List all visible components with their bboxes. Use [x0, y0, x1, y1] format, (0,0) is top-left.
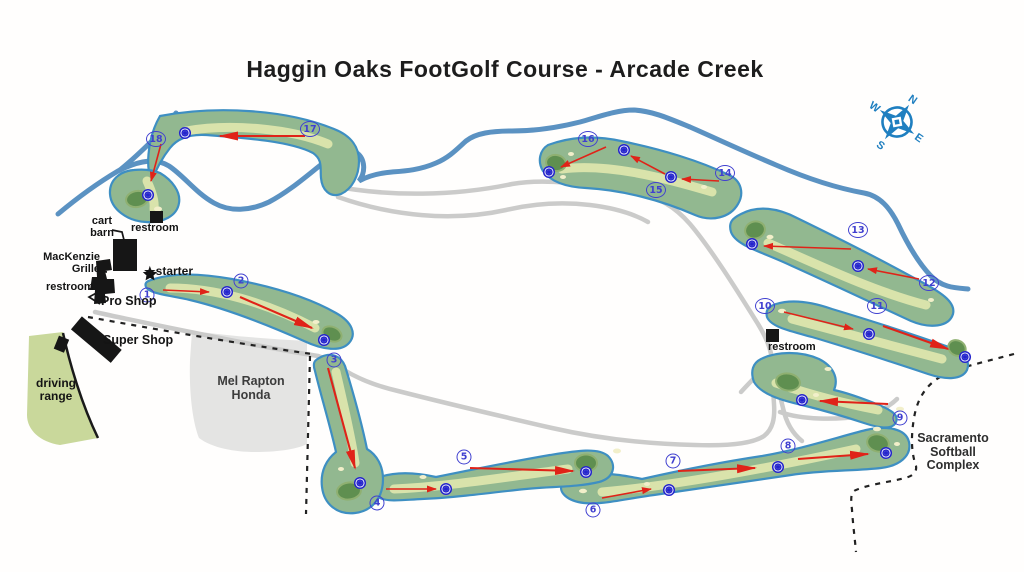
compass-n: N	[906, 93, 919, 107]
hole-12-target	[853, 261, 864, 272]
label-pro-shop: Pro Shop	[101, 295, 157, 309]
hole-8-label: 8	[781, 439, 796, 454]
hole-16-target	[544, 167, 555, 178]
label-mel-rapton-honda: Mel Rapton Honda	[204, 375, 298, 402]
label-softball-complex: Sacramento Softball Complex	[906, 432, 1000, 473]
hole-16-label: 16	[578, 131, 598, 147]
hole-7-label: 7	[666, 454, 681, 469]
hole-2-label: 2	[234, 274, 249, 289]
label-super-shop: Super Shop	[103, 334, 173, 348]
label-restroom-right: restroom	[768, 342, 816, 354]
hole-3-target	[355, 478, 366, 489]
hole-17-target	[180, 128, 191, 139]
compass-w: W	[867, 99, 883, 115]
fairways	[110, 110, 969, 513]
hole-8-target	[881, 448, 892, 459]
label-cart-barn: cart barn	[86, 216, 118, 240]
hole-13-label: 13	[848, 222, 868, 238]
hole-6-label: 6	[586, 503, 601, 518]
map-graphics: N E S W	[0, 0, 1024, 572]
hole-6-target	[664, 485, 675, 496]
compass-s: S	[874, 139, 887, 153]
course-map: N E S W 123456789101112131415161718 Hagg…	[0, 0, 1024, 572]
hole-18-target	[143, 190, 154, 201]
hole-7-target	[773, 462, 784, 473]
page-title: Haggin Oaks FootGolf Course - Arcade Cre…	[0, 56, 1010, 83]
hole-2-target	[319, 335, 330, 346]
hole-10-label: 10	[755, 298, 775, 314]
hole-11-target	[960, 352, 971, 363]
hole-1-target	[222, 287, 233, 298]
hole-9-label: 9	[893, 411, 908, 426]
compass-rose-icon: N E S W	[851, 77, 942, 169]
hole-15-target	[619, 145, 630, 156]
label-restroom-left: restroom	[46, 282, 94, 294]
cart-barn-building	[113, 239, 137, 271]
star-icon: ★	[144, 264, 156, 279]
compass-e: E	[912, 131, 925, 145]
hole-3-label: 3	[327, 353, 342, 368]
hole-14-target	[666, 172, 677, 183]
hole-15-label: 15	[646, 182, 666, 198]
hole-5-label: 5	[457, 450, 472, 465]
hole-14-label: 14	[715, 165, 735, 181]
hole-10-target	[864, 329, 875, 340]
fairway-17	[148, 110, 359, 195]
hole-13-target	[747, 239, 758, 250]
label-restroom-top: restroom	[131, 223, 179, 235]
hole-17-label: 17	[300, 121, 320, 137]
hole-18-label: 18	[146, 131, 166, 147]
hole-12-label: 12	[919, 275, 939, 291]
hole-5-target	[581, 467, 592, 478]
label-mackenzie-grille: MacKenzie Grille	[36, 252, 100, 276]
label-starter: ★starter	[144, 265, 193, 279]
hole-9-target	[797, 395, 808, 406]
hole-11-label: 11	[867, 298, 887, 314]
hole-4-target	[441, 484, 452, 495]
label-driving-range: driving range	[28, 377, 84, 403]
hole-4-label: 4	[370, 496, 385, 511]
